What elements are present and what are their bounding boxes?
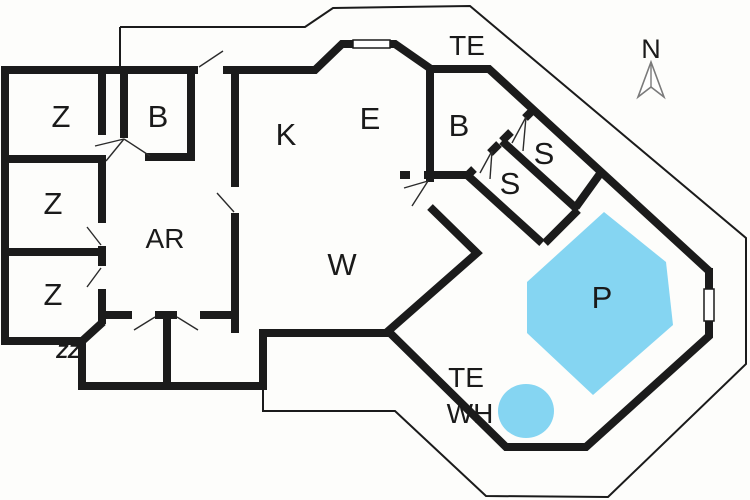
room-label-e: E xyxy=(360,101,381,136)
room-label-s2: S xyxy=(500,166,521,201)
terrace-label-top: TE xyxy=(449,30,485,61)
compass-north-label: N xyxy=(641,34,661,64)
room-label-w: W xyxy=(327,247,357,282)
window-bay xyxy=(353,40,390,48)
whirlpool-label: WH xyxy=(447,398,494,429)
pool-label: P xyxy=(592,280,613,315)
room-label-b2: B xyxy=(449,108,470,143)
whirlpool-shape xyxy=(498,384,554,438)
room-label-ar: AR xyxy=(146,223,185,254)
room-label-s1: S xyxy=(534,136,555,171)
corner-mark-label: ZZ xyxy=(55,342,81,363)
room-label-b1: B xyxy=(148,99,169,134)
floor-plan-drawing: Z Z Z B K E AR W B S S TE TE WH P ZZ N xyxy=(0,0,750,500)
window-poolhall xyxy=(704,289,714,321)
terrace-label-pool: TE xyxy=(448,362,484,393)
room-label-z2: Z xyxy=(44,186,63,221)
floor-plan-canvas: Z Z Z B K E AR W B S S TE TE WH P ZZ N xyxy=(0,0,750,500)
room-label-k: K xyxy=(276,117,297,152)
room-label-z1: Z xyxy=(52,99,71,134)
room-label-z3: Z xyxy=(44,277,63,312)
